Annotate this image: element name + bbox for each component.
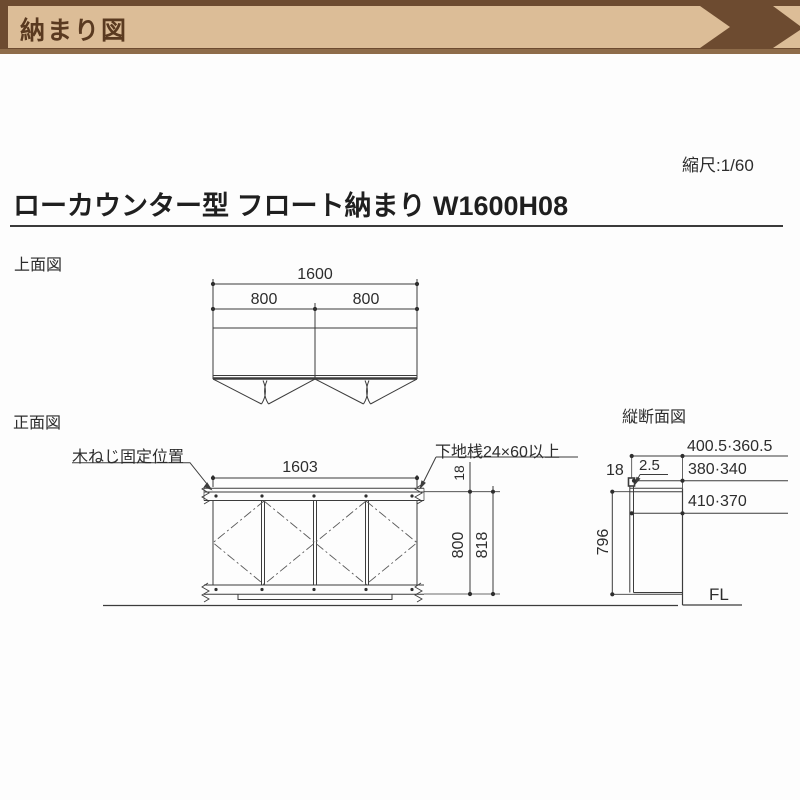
fl-label: FL [709,585,729,605]
front-view-drawing [72,457,678,606]
dim-800-left: 800 [214,291,314,309]
dim-796: 796 [595,512,613,572]
dim-800-right: 800 [316,291,416,309]
dim-818-height: 818 [474,515,492,575]
dim-2-5: 2.5 [639,457,660,474]
dim-depth-front: 410·370 [688,493,747,511]
dim-800-height: 800 [450,515,468,575]
dim-depth-body: 380·340 [688,461,747,479]
dim-18-section: 18 [606,462,624,480]
technical-drawing-svg [0,0,800,800]
dim-1600: 1600 [265,266,365,284]
dim-18-front: 18 [451,453,467,493]
drawing-page: 納まり図 縮尺:1/60 ローカウンター型 フロート納まり W1600H08 上… [0,0,800,800]
dim-depth-overall: 400.5·360.5 [687,438,772,456]
note-screw-position: 木ねじ固定位置 [72,443,184,467]
dim-1603: 1603 [250,459,350,477]
